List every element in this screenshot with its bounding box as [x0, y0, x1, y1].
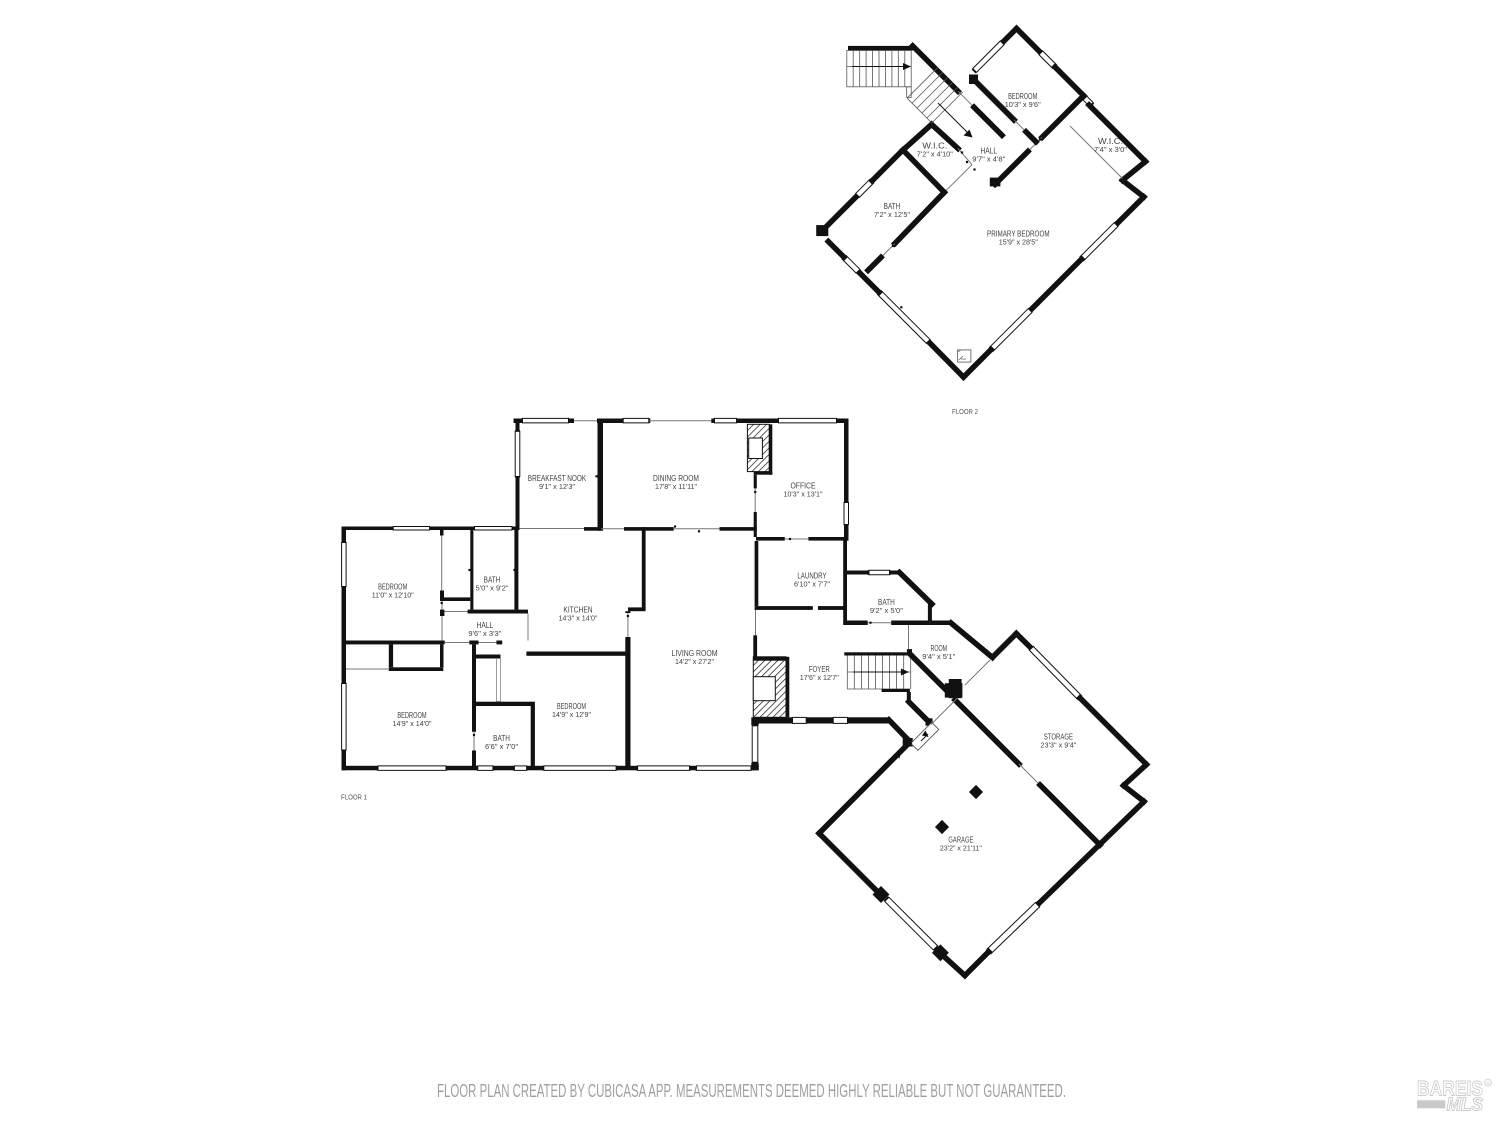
- svg-text:11'0" x 12'10": 11'0" x 12'10": [372, 591, 414, 600]
- svg-text:9'7" x 4'8": 9'7" x 4'8": [972, 155, 1005, 164]
- svg-text:17'6" x 12'7": 17'6" x 12'7": [800, 673, 839, 682]
- svg-text:23'3" x 9'4": 23'3" x 9'4": [1040, 740, 1076, 749]
- svg-text:17'8" x 11'11": 17'8" x 11'11": [655, 482, 697, 491]
- svg-text:15'9" x 28'5": 15'9" x 28'5": [999, 238, 1038, 247]
- svg-text:FLOOR PLAN CREATED BY CUBICASA: FLOOR PLAN CREATED BY CUBICASA APP. MEAS…: [437, 1081, 1066, 1101]
- svg-text:7'4" x 3'0": 7'4" x 3'0": [1094, 145, 1127, 154]
- svg-text:7'2" x 12'5": 7'2" x 12'5": [874, 210, 910, 219]
- svg-text:14'9" x 14'0": 14'9" x 14'0": [393, 719, 432, 728]
- svg-text:9'6" x 3'3": 9'6" x 3'3": [468, 629, 501, 638]
- svg-text:14'9" x 12'9": 14'9" x 12'9": [552, 710, 591, 719]
- svg-text:23'2" x 21'11": 23'2" x 21'11": [940, 844, 982, 853]
- svg-text:FLOOR 2: FLOOR 2: [952, 407, 978, 416]
- svg-text:10'3" x 13'1": 10'3" x 13'1": [784, 490, 823, 499]
- svg-text:6'10" x 7'7": 6'10" x 7'7": [794, 579, 830, 588]
- svg-text:MLS: MLS: [1447, 1095, 1484, 1115]
- svg-text:7'2" x 4'10": 7'2" x 4'10": [917, 149, 953, 158]
- svg-text:9'1" x 12'3": 9'1" x 12'3": [539, 482, 575, 491]
- svg-text:9'4" x 5'1": 9'4" x 5'1": [922, 652, 955, 661]
- svg-text:14'2" x 27'2": 14'2" x 27'2": [675, 657, 714, 666]
- svg-text:14'3" x 14'0": 14'3" x 14'0": [559, 613, 598, 622]
- svg-text:10'3" x 9'6": 10'3" x 9'6": [1005, 100, 1041, 109]
- svg-text:R: R: [1486, 1081, 1490, 1087]
- svg-text:9'2" x 5'0": 9'2" x 5'0": [870, 606, 903, 615]
- svg-text:5'0" x 9'2": 5'0" x 9'2": [476, 584, 509, 593]
- svg-text:FLOOR 1: FLOOR 1: [341, 793, 367, 802]
- svg-text:6'6" x 7'0": 6'6" x 7'0": [485, 742, 518, 751]
